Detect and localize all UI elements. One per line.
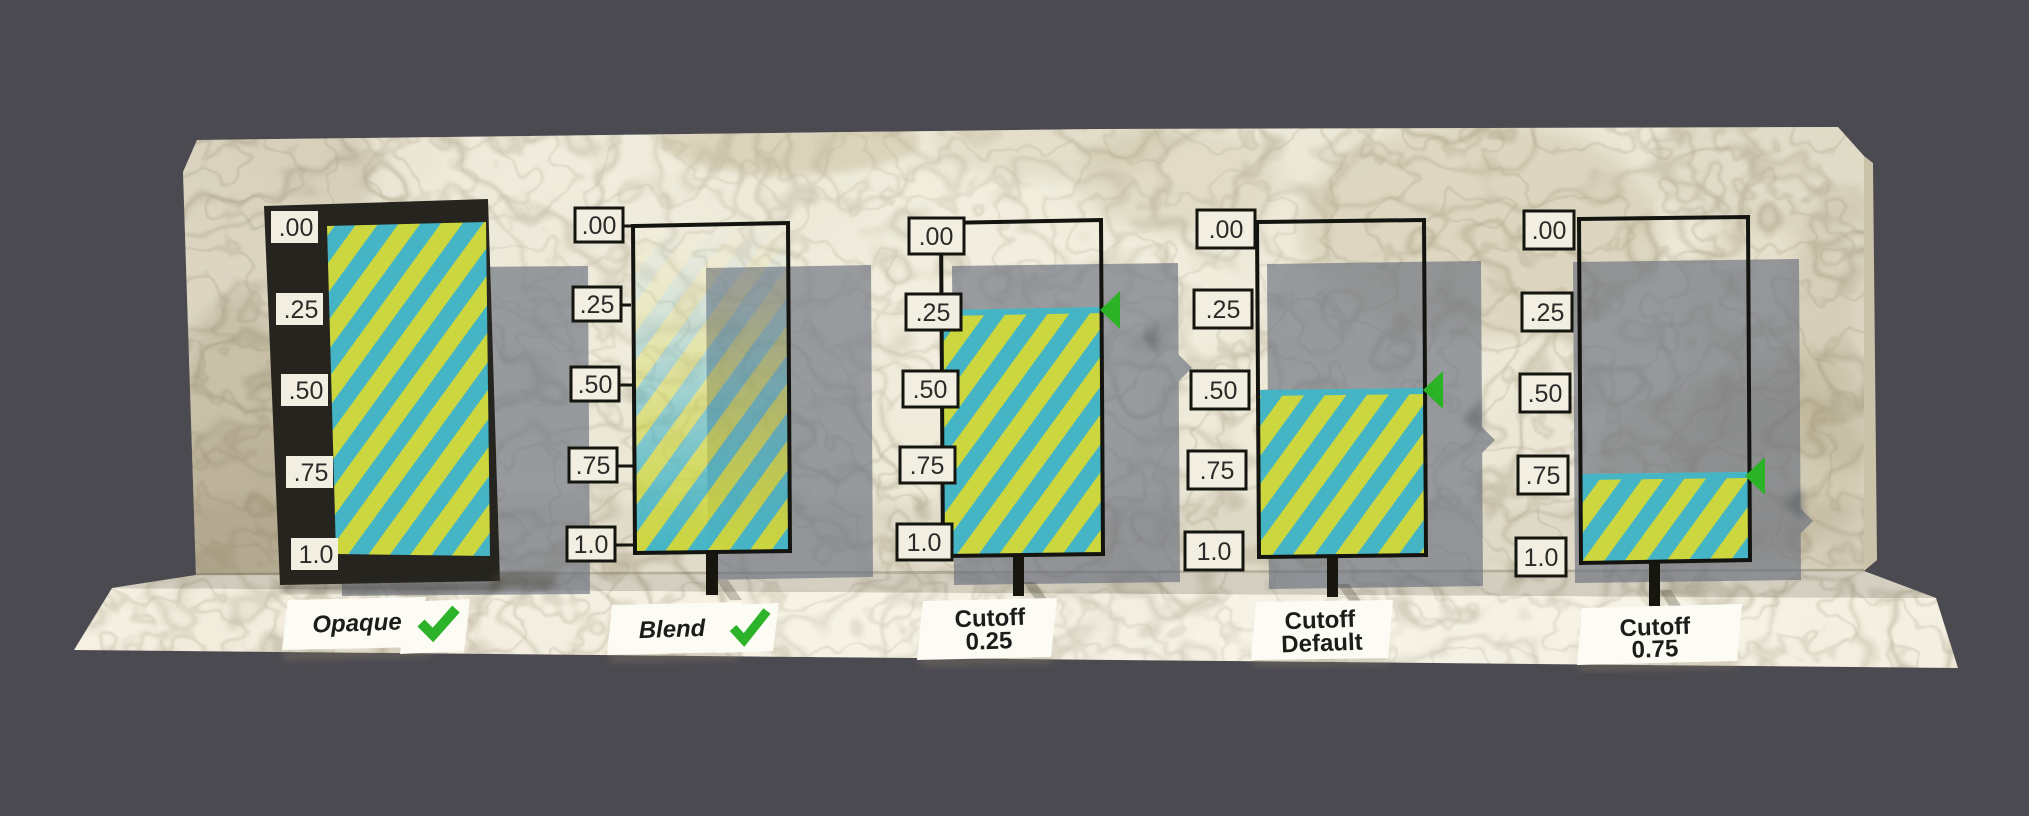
- svg-text:Default: Default: [1281, 629, 1363, 659]
- svg-text:.75: .75: [910, 452, 945, 480]
- svg-text:.50: .50: [1203, 377, 1238, 405]
- svg-text:.50: .50: [578, 371, 613, 399]
- svg-text:.00: .00: [1209, 216, 1244, 244]
- svg-text:.00: .00: [582, 212, 617, 240]
- svg-text:.75: .75: [1526, 462, 1561, 490]
- svg-text:1.0: 1.0: [1197, 538, 1232, 566]
- svg-text:0.75: 0.75: [1631, 635, 1679, 664]
- svg-text:.25: .25: [580, 291, 615, 319]
- svg-text:0.25: 0.25: [965, 627, 1013, 656]
- svg-text:.25: .25: [1206, 296, 1241, 324]
- svg-text:.00: .00: [919, 223, 954, 251]
- svg-text:Blend: Blend: [638, 615, 707, 644]
- svg-text:.25: .25: [1530, 299, 1565, 327]
- svg-text:.75: .75: [576, 452, 611, 480]
- svg-text:.25: .25: [284, 296, 319, 324]
- svg-text:1.0: 1.0: [299, 541, 334, 569]
- svg-text:1.0: 1.0: [574, 531, 609, 559]
- svg-text:.75: .75: [294, 459, 329, 487]
- svg-text:1.0: 1.0: [907, 529, 942, 557]
- svg-text:.50: .50: [1528, 380, 1563, 408]
- svg-text:Opaque: Opaque: [312, 608, 402, 638]
- svg-text:.50: .50: [289, 377, 324, 405]
- svg-text:.50: .50: [913, 376, 948, 404]
- svg-text:.25: .25: [916, 299, 951, 327]
- svg-text:.75: .75: [1200, 457, 1235, 485]
- svg-text:.00: .00: [279, 214, 314, 242]
- svg-text:.00: .00: [1532, 217, 1567, 245]
- svg-text:1.0: 1.0: [1524, 544, 1559, 572]
